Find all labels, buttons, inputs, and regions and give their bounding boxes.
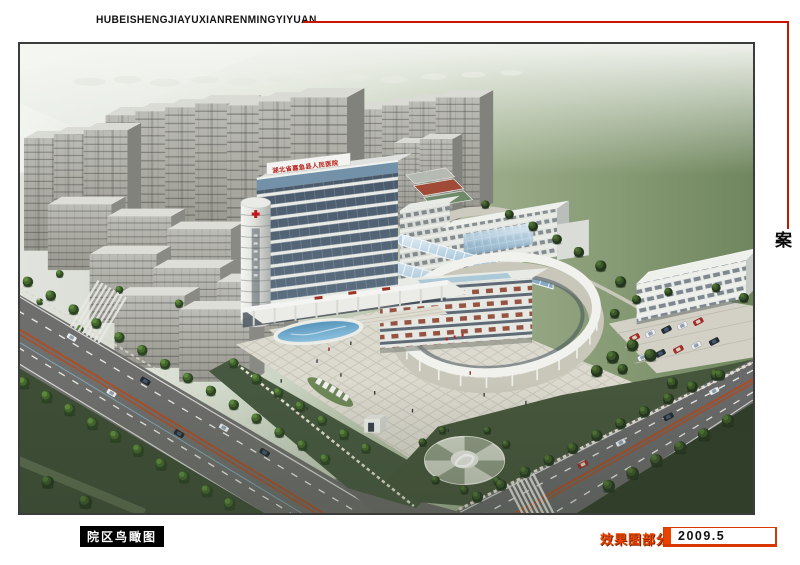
view-caption-tag: 院区鸟瞰图 bbox=[80, 526, 164, 547]
date-text: 2009.5 bbox=[671, 529, 725, 543]
aerial-rendering: 湖北省嘉鱼县人民医院 bbox=[20, 44, 753, 513]
presentation-board: { "header": { "pinyin_title": "HUBEISHEN… bbox=[0, 0, 800, 565]
vignette bbox=[20, 44, 753, 513]
date-box: 2009.5 bbox=[663, 527, 777, 547]
section-label: 效果图部分 bbox=[600, 529, 670, 548]
accent-line-horizontal bbox=[303, 21, 789, 23]
accent-line-vertical bbox=[787, 21, 789, 229]
rendering-frame: 湖北省嘉鱼县人民医院 bbox=[18, 42, 755, 515]
board-title-pinyin: HUBEISHENGJIAYUXIANRENMINGYIYUAN bbox=[96, 14, 317, 26]
board-title-vertical: 湖北省嘉鱼县人民医院规划设计方案 bbox=[768, 231, 800, 523]
date-box-bar bbox=[664, 528, 671, 544]
